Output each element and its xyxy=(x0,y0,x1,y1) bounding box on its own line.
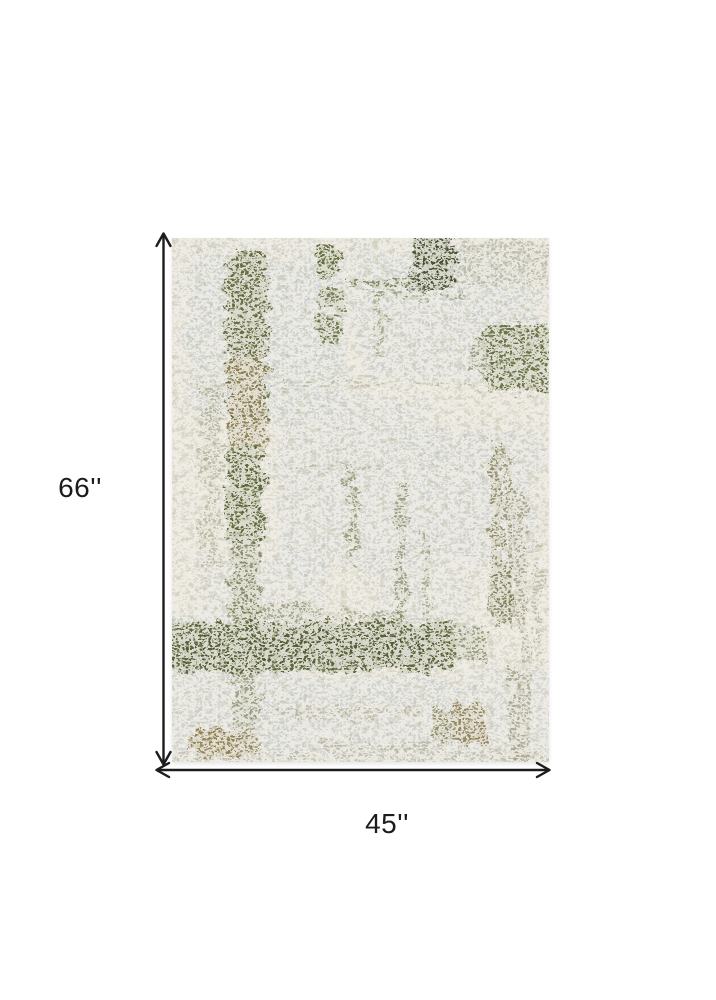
height-dimension-arrow xyxy=(157,234,171,765)
width-dimension-arrow xyxy=(157,763,550,777)
height-dimension-label: 66'' xyxy=(30,473,130,504)
width-dimension-label: 45'' xyxy=(337,809,437,840)
product-dimension-diagram: 66'' 45'' xyxy=(0,0,716,1000)
